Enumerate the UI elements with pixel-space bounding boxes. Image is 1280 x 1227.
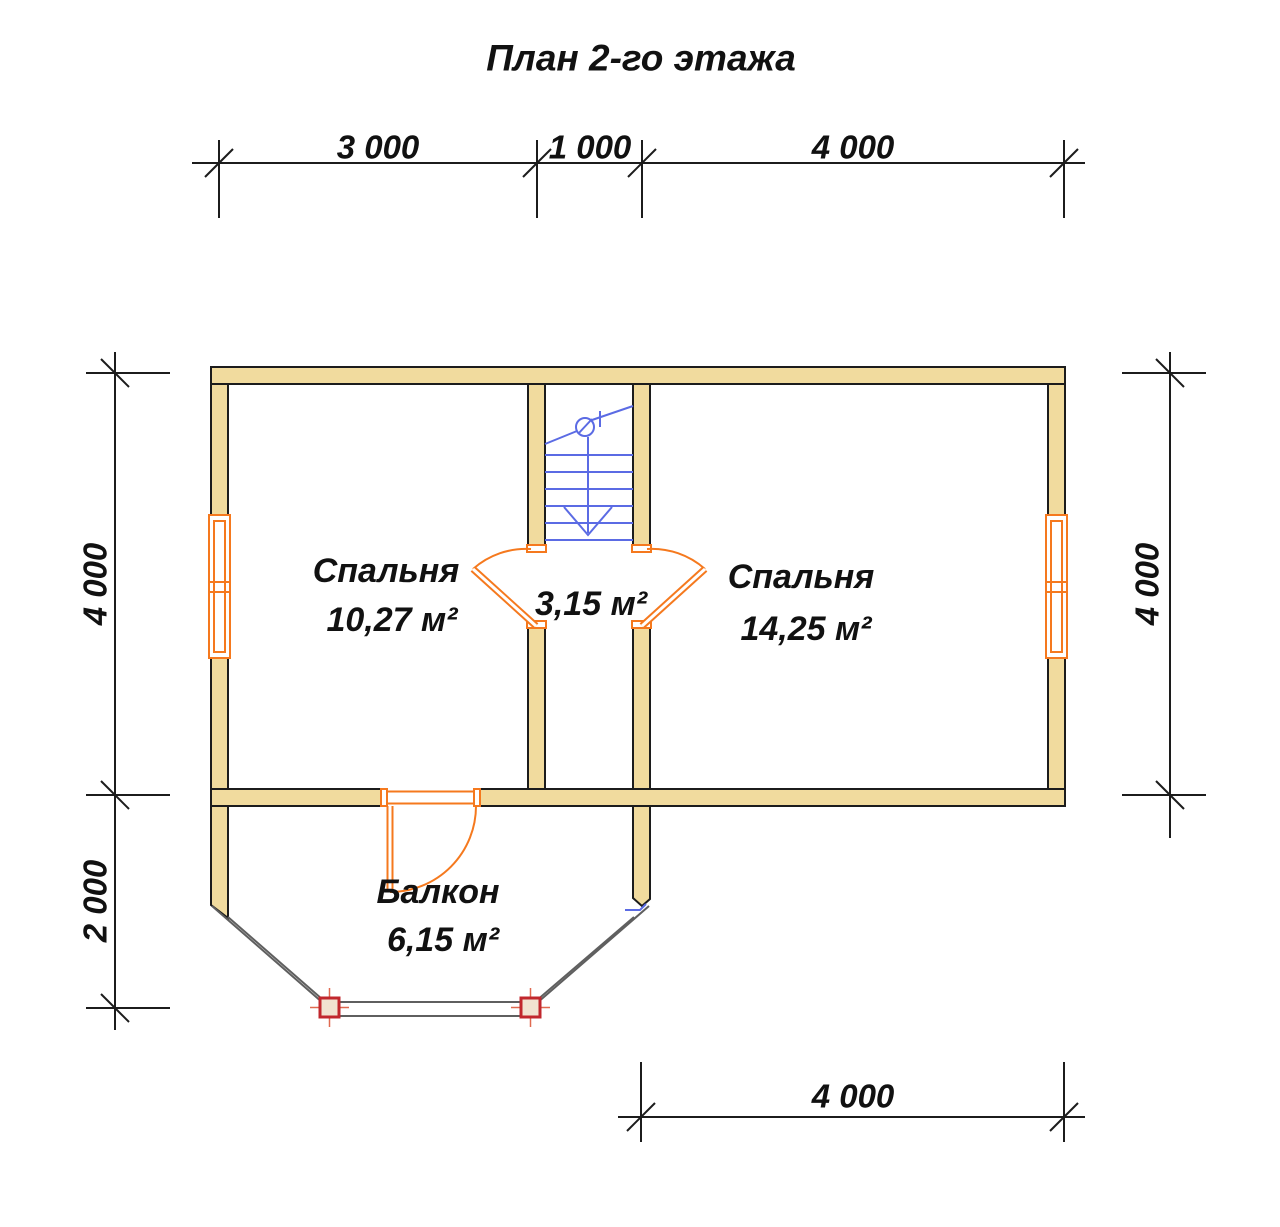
room-label-bedroom-right: Спальня [728,560,875,594]
stairs [545,406,633,540]
dim-top-1000: 1 000 [549,131,632,164]
door-hall-right [642,549,705,626]
dimension-top [192,140,1085,218]
room-area-hall: 3,15 м² [535,587,647,621]
wall-top [211,367,1065,384]
walls [211,367,1065,918]
dim-right-4000: 4 000 [1131,543,1164,626]
dim-bottom-4000: 4 000 [812,1080,895,1113]
dim-top-4000: 4 000 [812,131,895,164]
wall-right-lower [1048,658,1065,806]
room-area-bedroom-right: 14,25 м² [740,612,871,646]
dim-left-4000: 4 000 [79,543,112,626]
dim-left-2000: 2 000 [79,860,112,943]
page-title: План 2-го этажа [486,40,796,77]
wall-stair-left-upper [528,384,545,546]
dim-top-3000: 3 000 [337,131,420,164]
door-hall-left [473,549,536,626]
wall-bottom-right [477,789,1065,806]
room-label-balcony: Балкон [376,875,499,909]
room-label-bedroom-left: Спальня [313,554,460,588]
wall-stair-right-upper [633,384,650,546]
wall-bottom-left [211,789,383,806]
window-right [1046,515,1067,658]
wall-stair-right-lower [633,628,650,789]
wall-stair-right-stub [633,806,650,906]
room-area-bedroom-left: 10,27 м² [326,603,457,637]
room-area-balcony: 6,15 м² [387,923,499,957]
wall-right-upper [1048,384,1065,515]
wall-stair-left-lower [528,628,545,789]
wall-left-upper [211,384,228,515]
floor-plan-page: План 2-го этажа 3 000 1 000 4 000 4 000 … [0,0,1280,1227]
window-left [209,515,230,658]
